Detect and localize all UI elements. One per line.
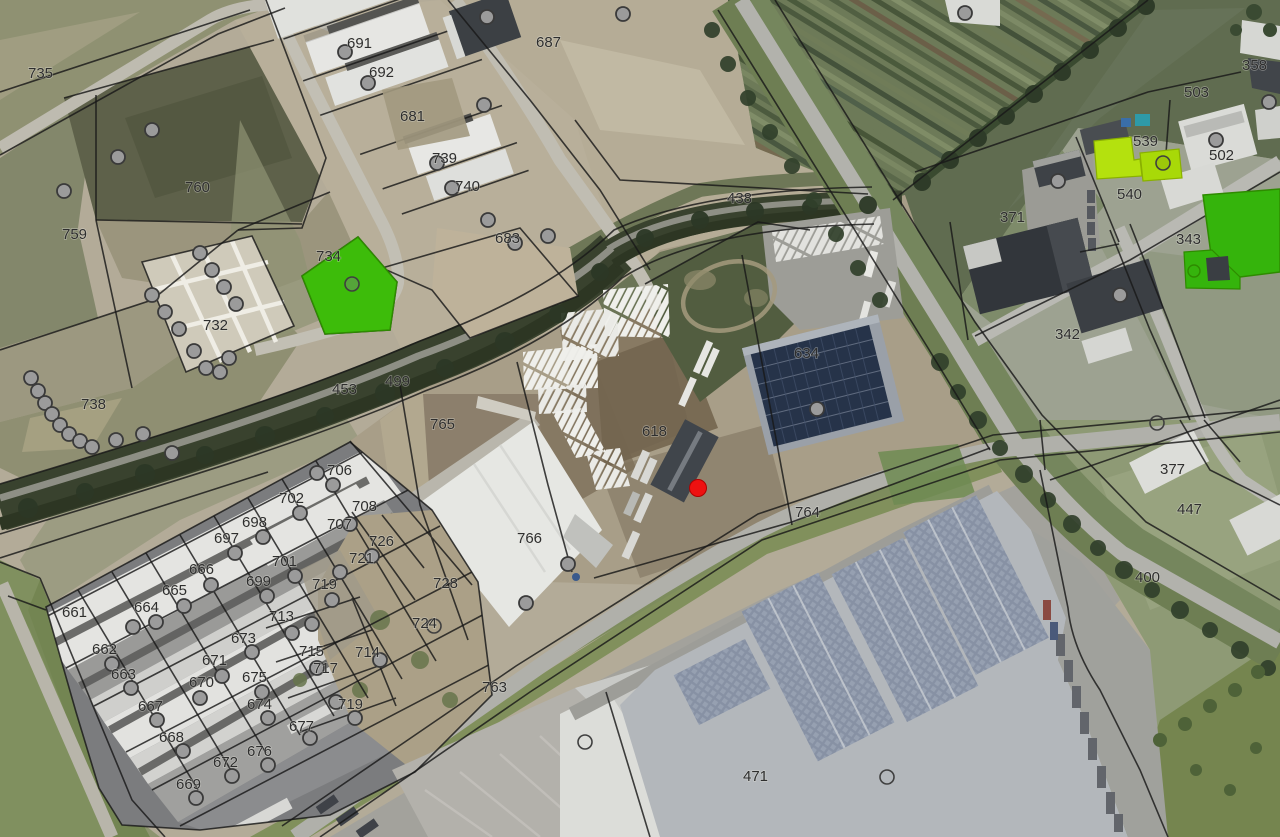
svg-text:667: 667 bbox=[138, 698, 163, 715]
svg-text:702: 702 bbox=[279, 490, 304, 507]
svg-text:724: 724 bbox=[412, 615, 437, 632]
svg-text:719: 719 bbox=[338, 696, 363, 713]
svg-text:706: 706 bbox=[327, 462, 352, 479]
svg-text:760: 760 bbox=[185, 179, 210, 196]
svg-text:665: 665 bbox=[162, 582, 187, 599]
svg-text:618: 618 bbox=[642, 423, 667, 440]
svg-text:358: 358 bbox=[1242, 57, 1267, 74]
svg-text:717: 717 bbox=[313, 660, 338, 677]
svg-text:726: 726 bbox=[369, 533, 394, 550]
svg-text:503: 503 bbox=[1184, 84, 1209, 101]
svg-text:721: 721 bbox=[349, 550, 374, 567]
svg-text:687: 687 bbox=[536, 34, 561, 51]
svg-text:400: 400 bbox=[1135, 569, 1160, 586]
svg-text:715: 715 bbox=[299, 643, 324, 660]
svg-text:371: 371 bbox=[1000, 209, 1025, 226]
svg-text:664: 664 bbox=[134, 599, 159, 616]
svg-text:471: 471 bbox=[743, 768, 768, 785]
svg-text:634: 634 bbox=[794, 345, 819, 362]
svg-text:342: 342 bbox=[1055, 326, 1080, 343]
svg-text:670: 670 bbox=[189, 674, 214, 691]
svg-text:661: 661 bbox=[62, 604, 87, 621]
svg-text:734: 734 bbox=[316, 248, 341, 265]
svg-text:539: 539 bbox=[1133, 133, 1158, 150]
svg-text:669: 669 bbox=[176, 776, 201, 793]
svg-text:698: 698 bbox=[242, 514, 267, 531]
svg-text:738: 738 bbox=[81, 396, 106, 413]
svg-text:764: 764 bbox=[795, 504, 820, 521]
svg-text:671: 671 bbox=[202, 652, 227, 669]
svg-text:343: 343 bbox=[1176, 231, 1201, 248]
svg-text:699: 699 bbox=[246, 573, 271, 590]
svg-text:719: 719 bbox=[312, 576, 337, 593]
svg-text:692: 692 bbox=[369, 64, 394, 81]
svg-text:674: 674 bbox=[247, 696, 272, 713]
svg-text:740: 740 bbox=[455, 178, 480, 195]
svg-text:447: 447 bbox=[1177, 501, 1202, 518]
svg-text:662: 662 bbox=[92, 641, 117, 658]
svg-text:691: 691 bbox=[347, 35, 372, 52]
svg-text:708: 708 bbox=[352, 498, 377, 515]
svg-text:438: 438 bbox=[727, 190, 752, 207]
svg-text:765: 765 bbox=[430, 416, 455, 433]
svg-text:453: 453 bbox=[332, 381, 357, 398]
svg-text:675: 675 bbox=[242, 669, 267, 686]
svg-text:763: 763 bbox=[482, 679, 507, 696]
svg-text:707: 707 bbox=[327, 516, 352, 533]
svg-text:672: 672 bbox=[213, 754, 238, 771]
svg-text:668: 668 bbox=[159, 729, 184, 746]
svg-text:732: 732 bbox=[203, 317, 228, 334]
svg-text:663: 663 bbox=[111, 666, 136, 683]
svg-text:666: 666 bbox=[189, 561, 214, 578]
svg-text:697: 697 bbox=[214, 530, 239, 547]
svg-text:735: 735 bbox=[28, 65, 53, 82]
svg-text:714: 714 bbox=[355, 644, 380, 661]
svg-text:377: 377 bbox=[1160, 461, 1185, 478]
svg-text:540: 540 bbox=[1117, 186, 1142, 203]
svg-text:677: 677 bbox=[289, 718, 314, 735]
svg-text:673: 673 bbox=[231, 630, 256, 647]
svg-text:739: 739 bbox=[432, 150, 457, 167]
svg-text:728: 728 bbox=[433, 575, 458, 592]
svg-text:502: 502 bbox=[1209, 147, 1234, 164]
svg-text:683: 683 bbox=[495, 230, 520, 247]
svg-text:681: 681 bbox=[400, 108, 425, 125]
svg-text:766: 766 bbox=[517, 530, 542, 547]
svg-text:701: 701 bbox=[272, 553, 297, 570]
svg-text:499: 499 bbox=[385, 373, 410, 390]
svg-text:759: 759 bbox=[62, 226, 87, 243]
svg-text:676: 676 bbox=[247, 743, 272, 760]
svg-text:713: 713 bbox=[269, 608, 294, 625]
